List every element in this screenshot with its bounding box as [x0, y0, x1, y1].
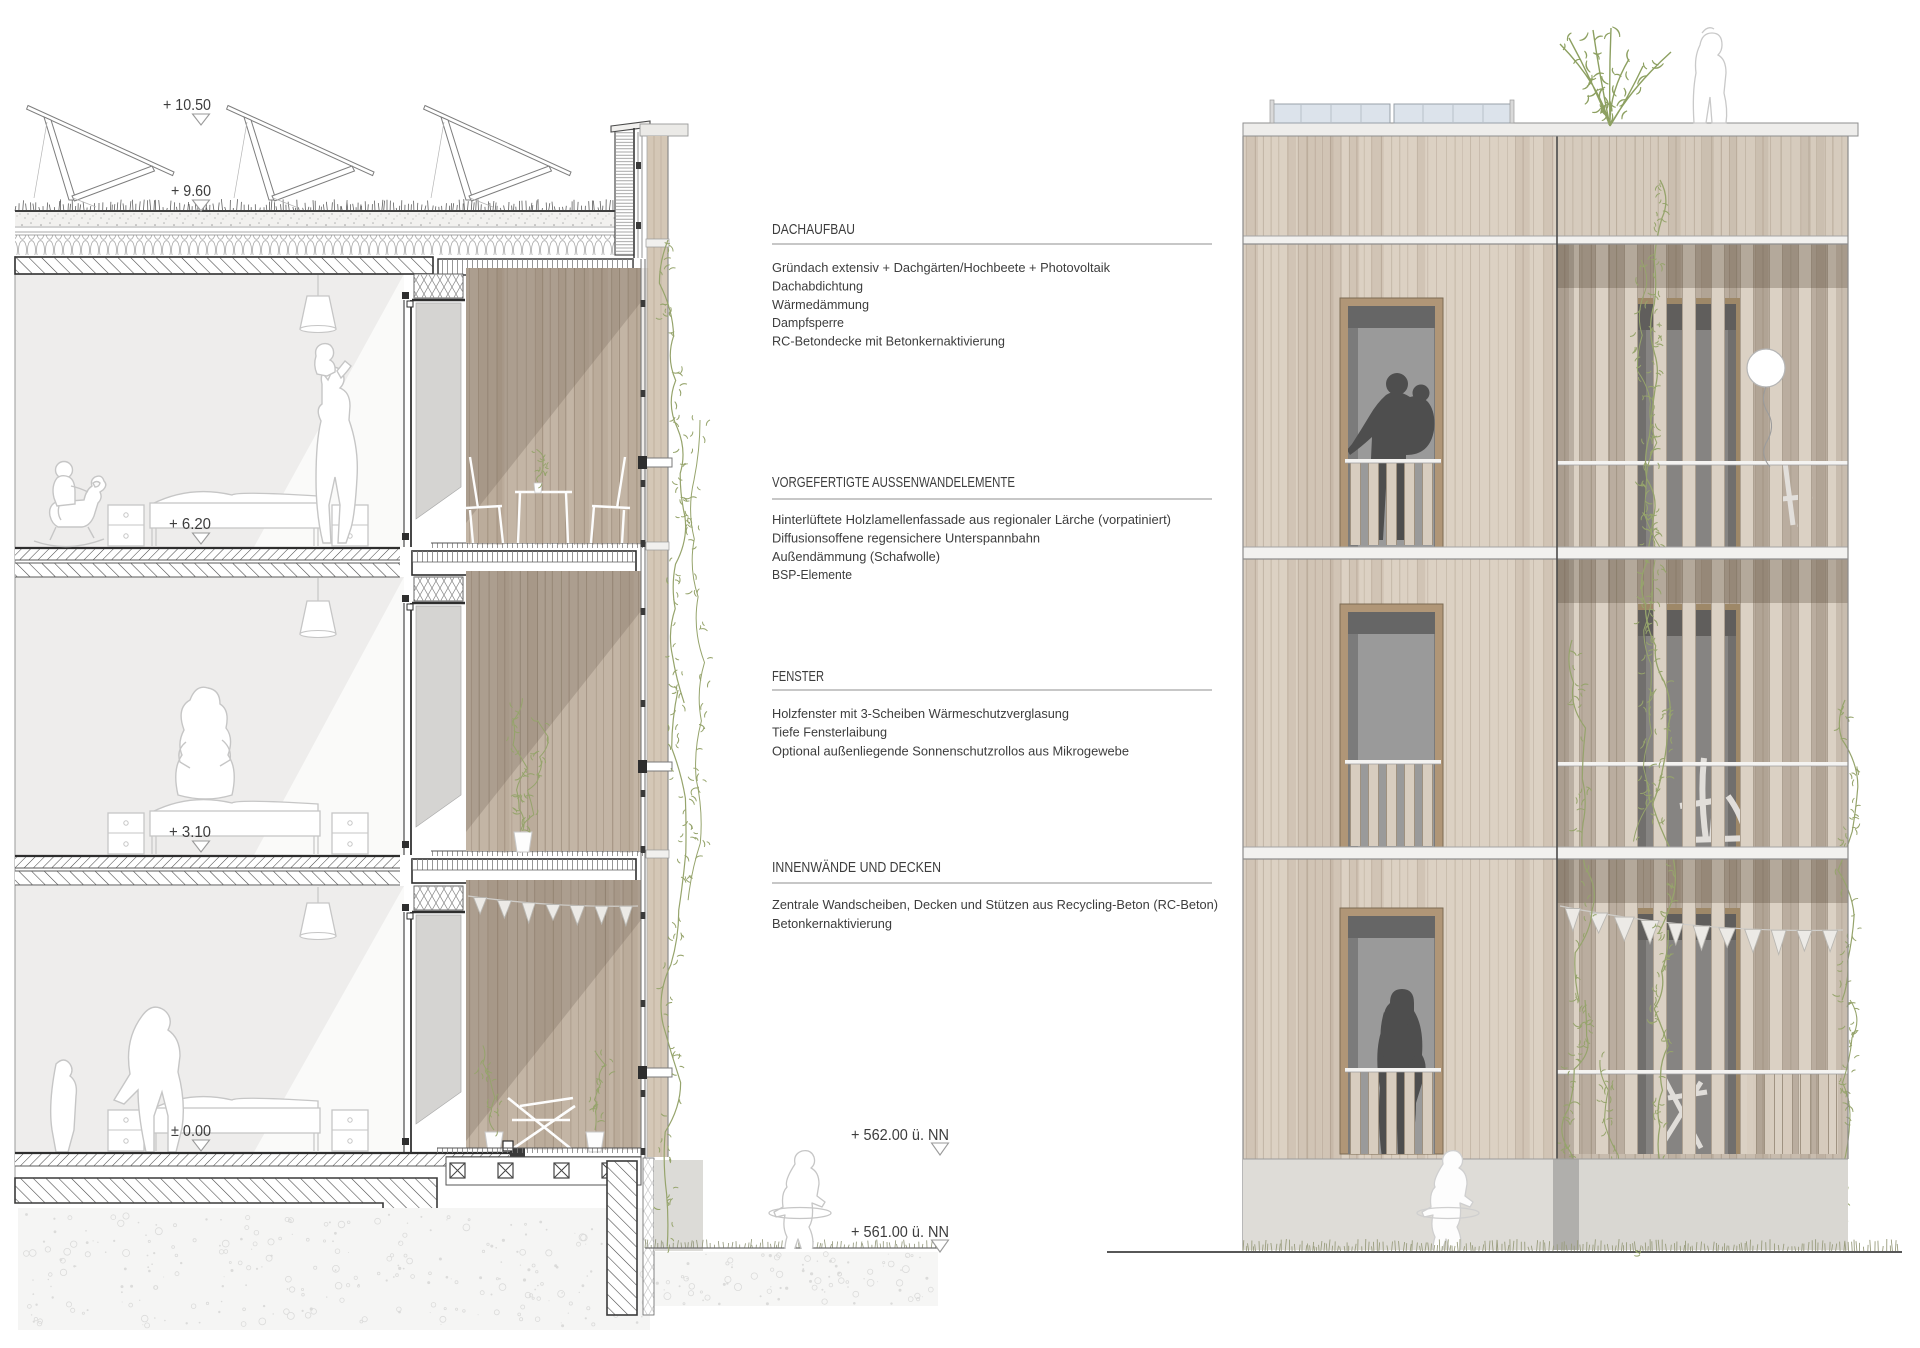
svg-text:BSP-Elemente: BSP-Elemente [772, 567, 852, 582]
svg-text:FENSTER: FENSTER [772, 669, 824, 685]
svg-text:± 0.00: ± 0.00 [171, 1123, 211, 1140]
svg-text:+ 562.00 ü. NN: + 562.00 ü. NN [851, 1127, 949, 1144]
svg-text:+ 561.00 ü. NN: + 561.00 ü. NN [851, 1224, 949, 1241]
svg-text:Diffusionsoffene regensichere: Diffusionsoffene regensichere Unterspann… [772, 530, 1040, 545]
svg-text:Optional außenliegende Sonnens: Optional außenliegende Sonnenschutzrollo… [772, 743, 1129, 758]
svg-text:Dachabdichtung: Dachabdichtung [772, 278, 863, 293]
svg-text:DACHAUFBAU: DACHAUFBAU [772, 222, 855, 238]
svg-text:Tiefe Fensterlaibung: Tiefe Fensterlaibung [772, 725, 887, 740]
svg-text:+ 3.10: + 3.10 [169, 824, 211, 841]
svg-text:Dampfsperre: Dampfsperre [772, 315, 844, 330]
svg-text:Außendämmung (Schafwolle): Außendämmung (Schafwolle) [772, 549, 940, 564]
svg-text:Gründach extensiv + Dachgärten: Gründach extensiv + Dachgärten/Hochbeete… [772, 260, 1110, 275]
svg-text:Wärmedämmung: Wärmedämmung [772, 297, 869, 312]
svg-text:Hinterlüftete Holzlamellenfass: Hinterlüftete Holzlamellenfassade aus re… [772, 512, 1171, 527]
svg-text:+ 6.20: + 6.20 [169, 516, 211, 533]
svg-text:RC-Betondecke mit Betonkernakt: RC-Betondecke mit Betonkernaktivierung [772, 334, 1005, 349]
svg-text:Holzfenster mit 3-Scheiben Wär: Holzfenster mit 3-Scheiben Wärmeschutzve… [772, 706, 1069, 721]
svg-text:INNENWÄNDE UND DECKEN: INNENWÄNDE UND DECKEN [772, 859, 941, 876]
svg-text:+ 10.50: + 10.50 [163, 97, 211, 114]
svg-text:+ 9.60: + 9.60 [171, 183, 211, 200]
svg-text:Betonkernaktivierung: Betonkernaktivierung [772, 916, 892, 931]
svg-text:VORGEFERTIGTE AUSSENWANDELEMEN: VORGEFERTIGTE AUSSENWANDELEMENTE [772, 475, 1015, 491]
svg-text:Zentrale Wandscheiben, Decken: Zentrale Wandscheiben, Decken und Stütze… [772, 897, 1218, 912]
